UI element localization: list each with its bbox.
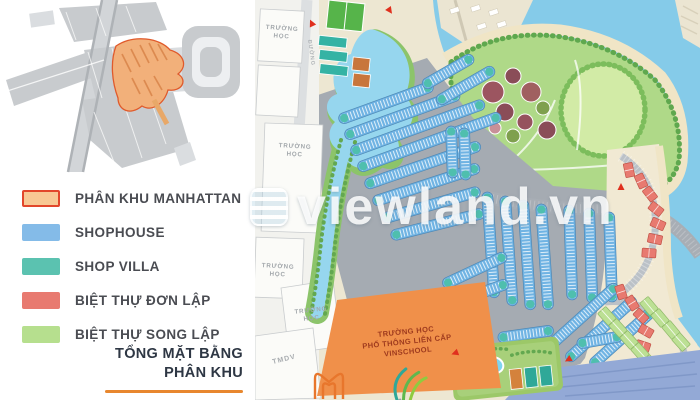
legend-item: BIỆT THỰ SONG LẬP xyxy=(22,326,241,343)
title-underline xyxy=(105,390,243,393)
masterplan-screenshot: PHÂN KHU MANHATTANSHOPHOUSESHOP VILLABIỆ… xyxy=(0,0,700,400)
legend: PHÂN KHU MANHATTANSHOPHOUSESHOP VILLABIỆ… xyxy=(22,190,241,360)
plan-title-line2: PHÂN KHU xyxy=(105,364,243,383)
legend-label: SHOPHOUSE xyxy=(75,225,165,240)
legend-item: BIỆT THỰ ĐƠN LẬP xyxy=(22,292,241,309)
info-panel: PHÂN KHU MANHATTANSHOPHOUSESHOP VILLABIỆ… xyxy=(0,0,255,400)
legend-label: SHOP VILLA xyxy=(75,259,160,274)
legend-swatch xyxy=(22,190,60,207)
legend-swatch xyxy=(22,224,60,241)
legend-swatch xyxy=(22,326,60,343)
legend-item: SHOPHOUSE xyxy=(22,224,241,241)
legend-swatch xyxy=(22,258,60,275)
basketball-court xyxy=(352,73,370,88)
shophouse-row xyxy=(446,126,459,178)
legend-swatch xyxy=(22,292,60,309)
plan-title-line1: TỔNG MẶT BẰNG xyxy=(105,345,243,364)
villa-don-lap xyxy=(642,248,657,258)
legend-label: BIỆT THỰ ĐƠN LẬP xyxy=(75,293,211,308)
location-minimap xyxy=(4,0,252,174)
legend-label: PHÂN KHU MANHATTAN xyxy=(75,191,241,206)
legend-item: SHOP VILLA xyxy=(22,258,241,275)
plan-title: TỔNG MẶT BẰNG PHÂN KHU xyxy=(105,345,243,393)
legend-label: BIỆT THỰ SONG LẬP xyxy=(75,327,220,342)
shophouse-row xyxy=(459,128,472,180)
basketball-court xyxy=(352,57,370,72)
legend-item: PHÂN KHU MANHATTAN xyxy=(22,190,241,207)
masterplan-map: TRƯỜNG HỌC PHỔ THÔNG LIÊN CẤP VINSCHOOL … xyxy=(255,0,700,400)
